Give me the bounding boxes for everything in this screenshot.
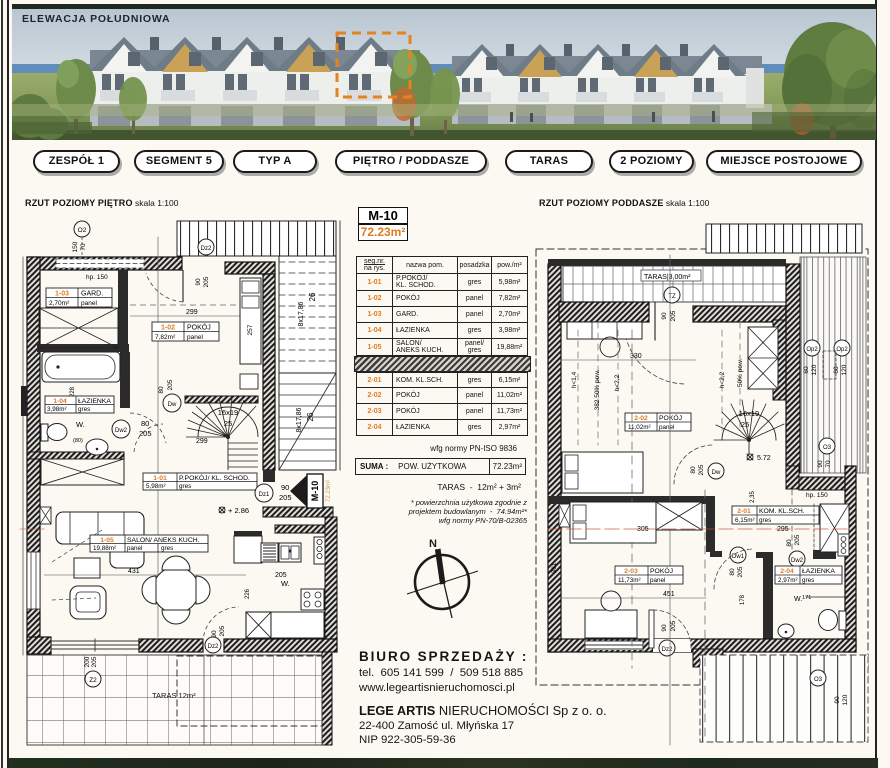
svg-text:panel: panel [81,300,97,307]
svg-text:O2: O2 [78,227,87,234]
svg-text:KOM. KL.SCH.: KOM. KL.SCH. [759,508,805,515]
svg-text:26: 26 [306,412,315,421]
svg-text:POKÓJ: POKÓJ [187,323,211,332]
svg-text:h<2,2: h<2,2 [614,374,621,391]
svg-text:h<2,2: h<2,2 [719,371,726,388]
svg-text:205: 205 [203,276,210,287]
svg-text:50% pow.: 50% pow. [737,359,744,387]
svg-text:1-03: 1-03 [55,291,69,298]
svg-text:26: 26 [308,292,317,301]
svg-text:P.POKÓJ/ KL. SCHOD.: P.POKÓJ/ KL. SCHOD. [179,473,250,482]
svg-text:Dz2: Dz2 [662,647,673,653]
svg-text:205: 205 [698,464,705,475]
svg-text:70: 70 [825,460,832,468]
svg-text:16x19: 16x19 [739,409,759,418]
svg-text:80: 80 [786,539,793,547]
svg-text:7,82m²: 7,82m² [155,334,176,341]
svg-text:451: 451 [663,591,675,598]
svg-text:90: 90 [661,312,668,320]
svg-text:120: 120 [841,364,848,375]
svg-text:90: 90 [281,483,289,492]
svg-text:1-05: 1-05 [100,537,114,544]
svg-text:W.171: W.171 [794,595,811,603]
svg-text:TARAS 12m²: TARAS 12m² [152,691,196,700]
svg-text:299: 299 [196,438,208,445]
svg-text:90: 90 [195,278,202,286]
svg-text:205: 205 [167,379,174,390]
svg-text:361: 361 [551,562,558,573]
svg-text:gres: gres [802,577,814,584]
svg-text:11,02m²: 11,02m² [628,424,651,431]
svg-text:+ 2.86: + 2.86 [228,506,249,515]
svg-text:gres: gres [759,517,771,524]
svg-text:25: 25 [741,420,749,429]
svg-text:60: 60 [803,366,810,374]
svg-text:Dz1: Dz1 [259,492,270,498]
svg-text:N: N [429,538,437,550]
svg-text:382 50% pow.: 382 50% pow. [594,369,601,410]
svg-text:h<1,4: h<1,4 [571,371,578,388]
svg-text:5,98m²: 5,98m² [146,483,166,490]
svg-text:POKÓJ: POKÓJ [659,413,682,422]
svg-text:228: 228 [70,386,76,397]
svg-text:Dw2: Dw2 [791,558,804,564]
svg-text:3,98m²: 3,98m² [47,406,67,413]
svg-text:GARD.: GARD. [81,291,103,298]
svg-text:Dw2: Dw2 [115,428,128,434]
svg-text:80: 80 [141,419,149,428]
svg-text:16x19: 16x19 [218,408,238,417]
svg-text:80: 80 [690,466,697,474]
svg-text:70: 70 [80,243,87,251]
svg-text:299: 299 [186,309,198,316]
svg-text:TARAS|3,00m²: TARAS|3,00m² [644,274,691,281]
svg-text:ŁAZIENKA: ŁAZIENKA [78,398,111,405]
svg-text:257: 257 [247,324,254,335]
svg-text:M-10: M-10 [310,481,320,502]
svg-text:205: 205 [275,572,287,579]
svg-text:W.: W. [76,420,85,429]
svg-text:Dw: Dw [712,470,721,476]
svg-text:90: 90 [211,630,218,638]
svg-text:TZ: TZ [668,294,676,300]
svg-text:226: 226 [245,588,251,599]
svg-text:2-02: 2-02 [634,415,648,422]
svg-text:hp. 150: hp. 150 [86,274,108,281]
svg-text:2-04: 2-04 [780,568,794,575]
svg-text:1-04: 1-04 [53,398,67,405]
svg-text:panel: panel [650,577,665,584]
svg-text:205: 205 [91,656,98,667]
svg-text:205: 205 [670,310,677,321]
svg-text:panel: panel [659,424,674,431]
svg-text:11,73m²: 11,73m² [618,577,641,584]
svg-text:2-03: 2-03 [624,568,638,575]
svg-text:gres: gres [78,406,90,413]
svg-text:205: 205 [737,566,744,577]
svg-text:120: 120 [811,364,818,375]
svg-text:O3: O3 [814,677,823,683]
svg-text:25: 25 [224,419,232,428]
svg-text:205: 205 [219,625,226,636]
svg-text:O3: O3 [823,445,832,451]
svg-text:W.: W. [281,579,290,588]
svg-text:1-02: 1-02 [161,325,175,332]
svg-text:Dw: Dw [168,402,177,408]
svg-text:Op2: Op2 [806,347,818,353]
svg-text:120: 120 [842,694,849,705]
svg-text:gres: gres [161,545,173,552]
svg-text:Dw1: Dw1 [732,554,745,560]
svg-text:72.23m²: 72.23m² [326,480,332,502]
svg-text:200: 200 [84,656,91,667]
svg-text:19,88m²: 19,88m² [93,545,116,552]
svg-text:90: 90 [817,460,824,468]
svg-text:SALON/ ANEKS KUCH.: SALON/ ANEKS KUCH. [127,537,200,544]
svg-text:60: 60 [833,366,840,374]
svg-text:6,15m²: 6,15m² [735,517,755,524]
svg-text:2,70m²: 2,70m² [49,300,70,307]
svg-text:178: 178 [740,594,746,605]
svg-text:2,97m²: 2,97m² [778,577,798,584]
svg-text:1-01: 1-01 [153,475,167,482]
svg-text:panel: panel [187,334,203,341]
svg-text:150: 150 [72,241,79,252]
svg-text:Dz2: Dz2 [201,246,212,252]
svg-text:205: 205 [670,620,677,631]
svg-text:panel: panel [127,545,142,552]
svg-text:Op2: Op2 [836,347,848,353]
svg-text:5.72: 5.72 [757,455,771,462]
svg-text:80: 80 [729,568,736,576]
svg-text:205: 205 [794,534,801,545]
svg-text:ŁAZIENKA: ŁAZIENKA [802,568,835,575]
svg-text:90: 90 [661,624,668,632]
svg-text:hp. 150: hp. 150 [806,492,828,499]
svg-text:205: 205 [279,493,292,502]
svg-text:2-01: 2-01 [737,508,751,515]
svg-text:2,35: 2,35 [750,491,756,503]
svg-text:90: 90 [834,696,841,704]
svg-text:8x17,86: 8x17,86 [298,301,305,326]
svg-text:431: 431 [128,568,140,575]
svg-text:Dz2: Dz2 [208,644,219,650]
svg-text:(80): (80) [73,438,83,444]
svg-text:8x17,86: 8x17,86 [296,407,303,432]
svg-text:80: 80 [158,386,165,394]
svg-text:gres: gres [179,483,191,490]
svg-text:POKÓJ: POKÓJ [650,566,673,575]
svg-text:Z2: Z2 [89,677,97,684]
